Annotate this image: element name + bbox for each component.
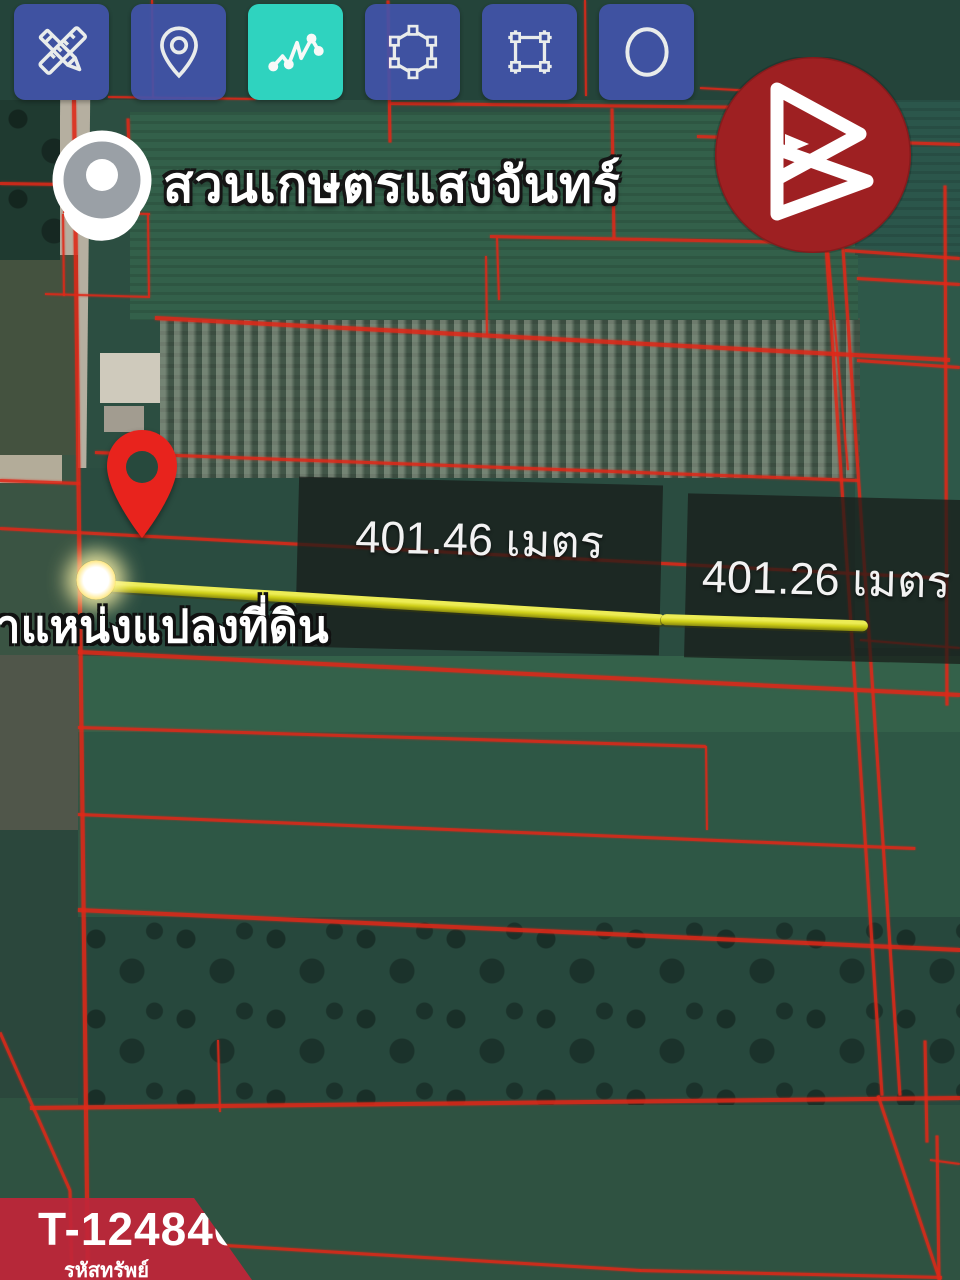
draw-rectangle-tool-button[interactable] bbox=[482, 4, 577, 100]
map-terrain-patch bbox=[78, 652, 960, 732]
map-terrain-patch bbox=[100, 353, 162, 403]
map-terrain-patch bbox=[0, 255, 78, 455]
polygon-icon bbox=[382, 21, 444, 83]
map-terrain-patch bbox=[0, 95, 60, 260]
dropped-pin-marker[interactable] bbox=[100, 426, 184, 546]
draw-measure-tool-button[interactable] bbox=[14, 4, 109, 100]
drawing-toolbar bbox=[14, 4, 694, 100]
ruler-pencil-icon bbox=[31, 21, 93, 83]
property-code-caption: รหัสทรัพย์ bbox=[64, 1254, 149, 1280]
triangle-b-logo-icon bbox=[713, 57, 913, 253]
place-name-label: สวนเกษตรแสงจันทร์ bbox=[163, 146, 621, 225]
rectangle-icon bbox=[499, 21, 561, 83]
pin-caption-label: ตำแหน่งแปลงที่ดิน bbox=[0, 590, 329, 662]
drop-pin-tool-button[interactable] bbox=[131, 4, 226, 100]
map-terrain-patch bbox=[0, 655, 78, 830]
draw-circle-tool-button[interactable] bbox=[599, 4, 694, 100]
draw-polygon-tool-button[interactable] bbox=[365, 4, 460, 100]
circle-icon bbox=[616, 21, 678, 83]
map-pin-icon bbox=[148, 21, 210, 83]
place-photo-marker[interactable] bbox=[52, 128, 152, 260]
measurement-label: 401.46 เมตร bbox=[295, 477, 663, 656]
measure-polyline-tool-button[interactable] bbox=[248, 4, 343, 100]
map-terrain-patch bbox=[160, 318, 860, 478]
polyline-zigzag-icon bbox=[265, 21, 327, 83]
satellite-map-view[interactable]: สวนเกษตรแสงจันทร์ ตำแหน่งแปลงที่ดิน 401.… bbox=[0, 0, 960, 1280]
measurement-label: 401.26 เมตร bbox=[684, 493, 960, 664]
map-terrain-patch bbox=[78, 732, 960, 917]
